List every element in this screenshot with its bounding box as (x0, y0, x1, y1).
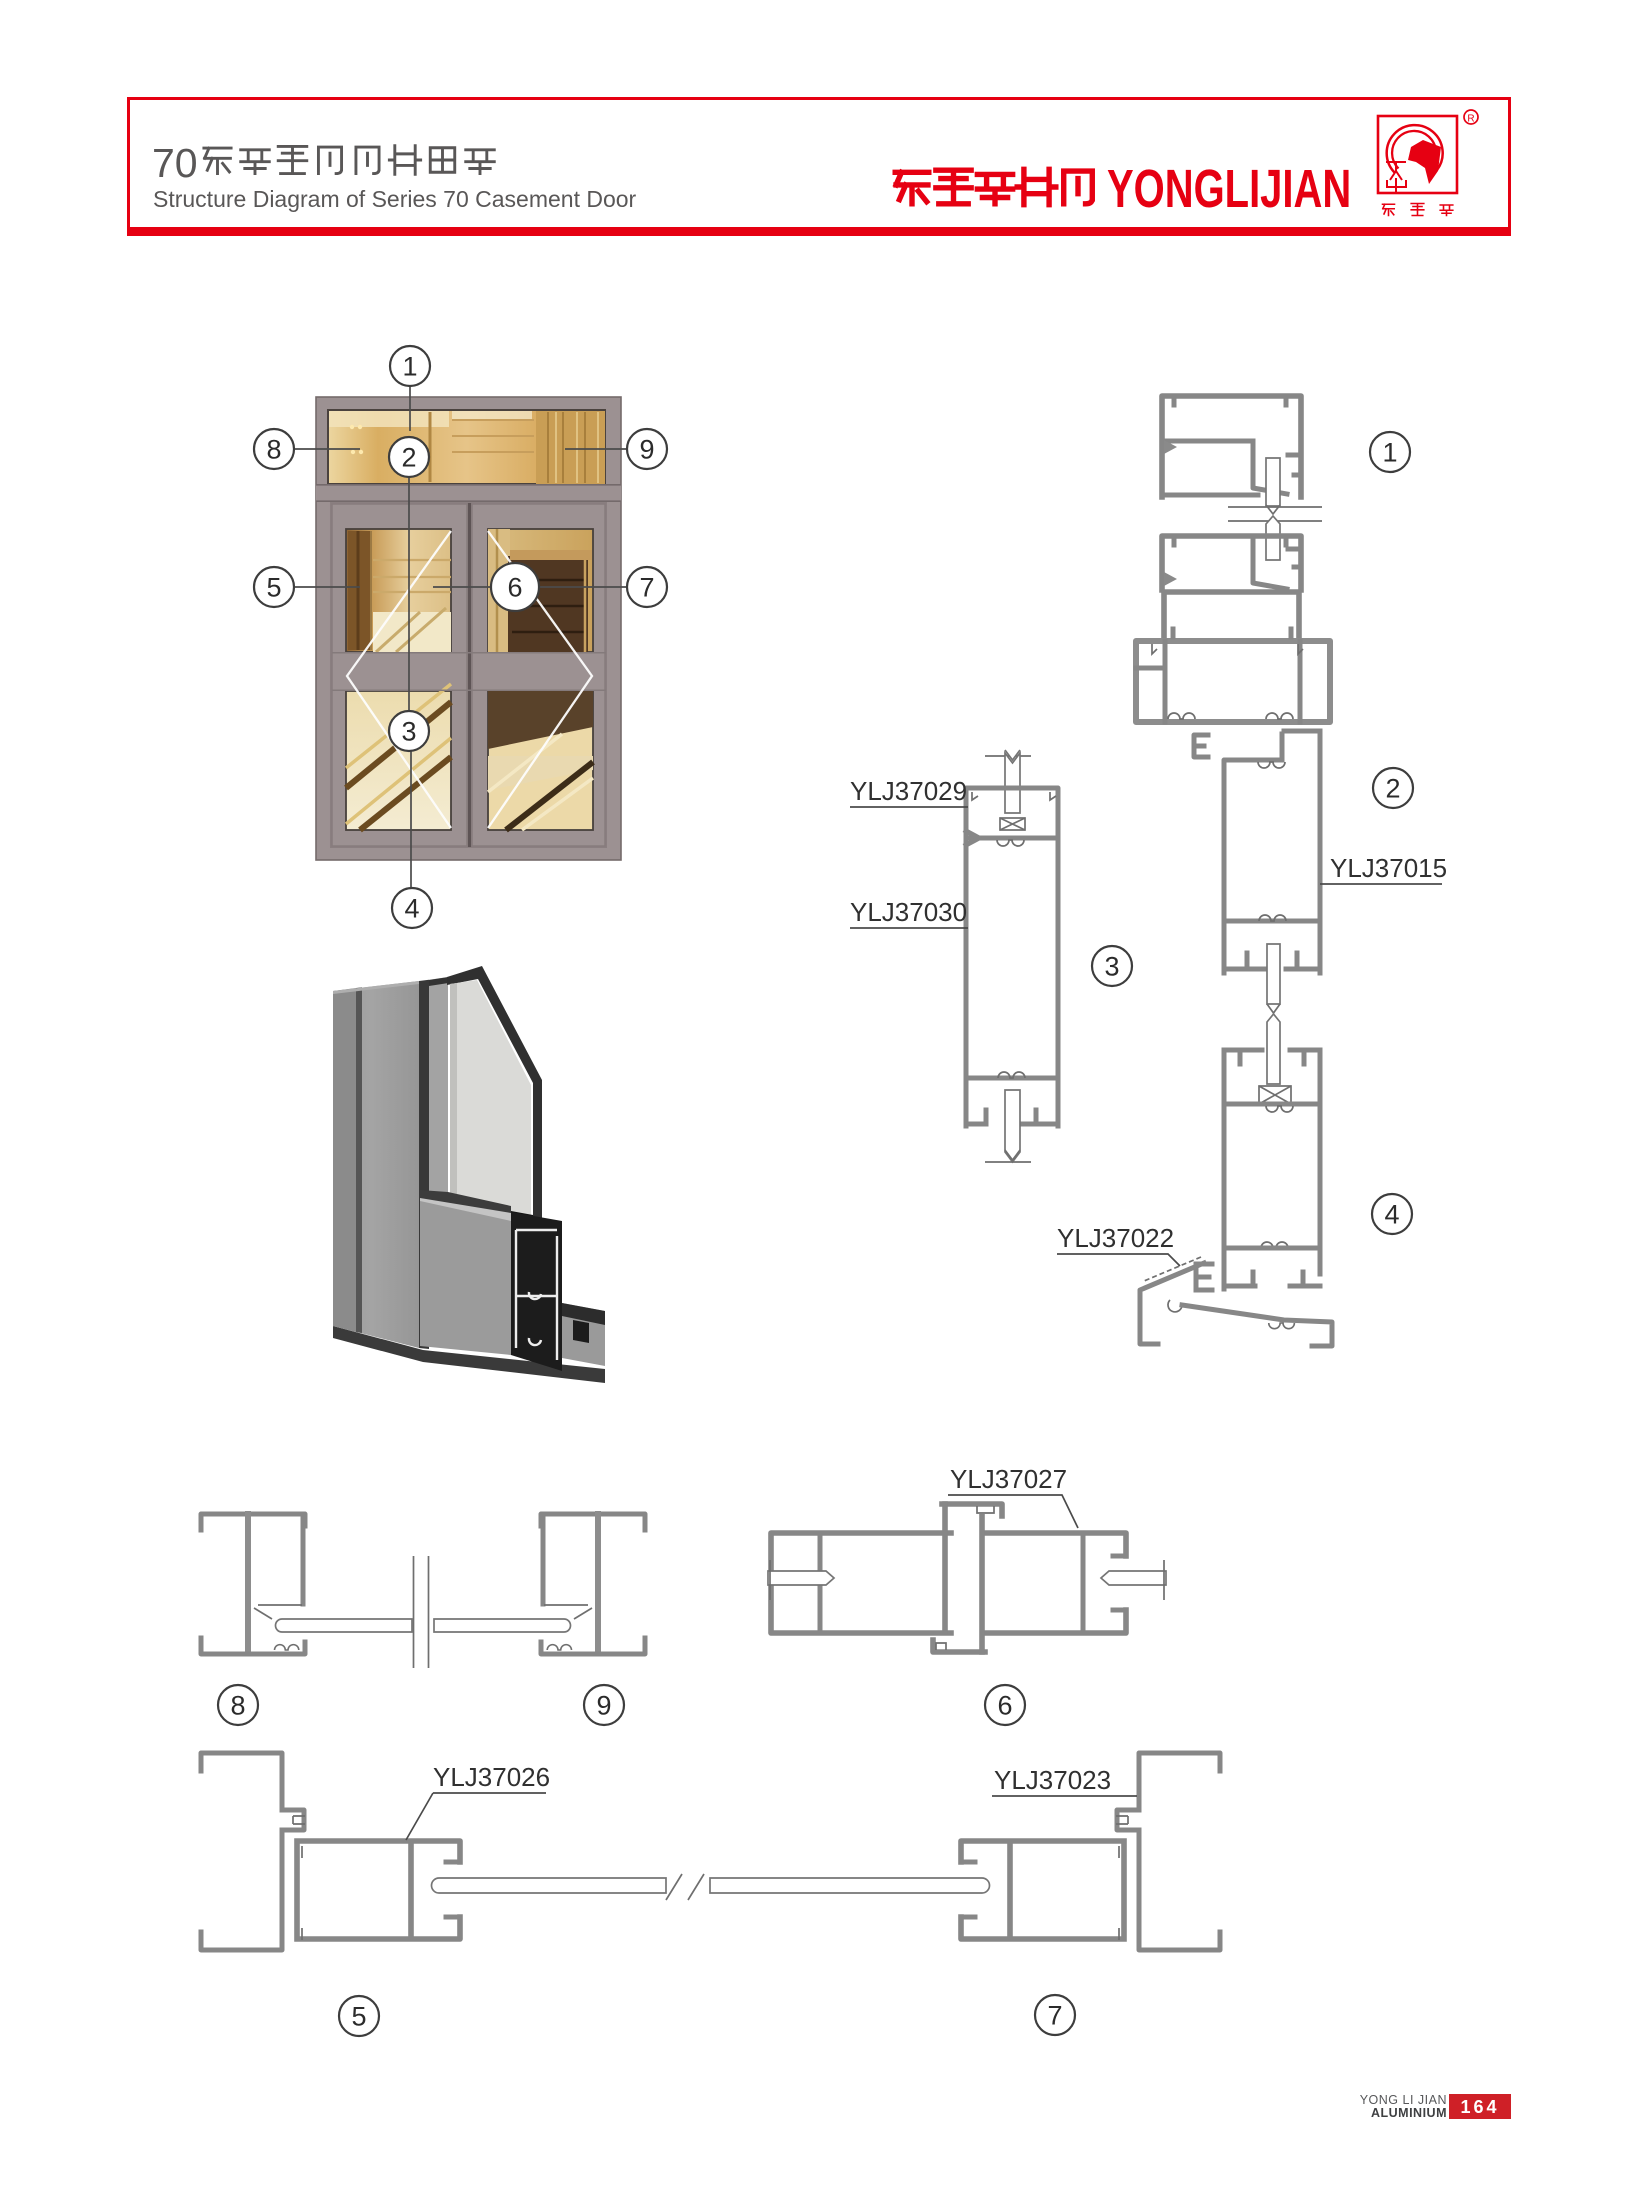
svg-text:YLJ37023: YLJ37023 (994, 1765, 1111, 1795)
svg-text:3: 3 (1104, 952, 1119, 982)
svg-text:9: 9 (639, 435, 654, 465)
svg-text:YLJ37030: YLJ37030 (850, 897, 967, 927)
svg-text:164: 164 (1460, 2097, 1499, 2117)
svg-text:R: R (1467, 114, 1474, 125)
svg-text:Structure Diagram of Series 70: Structure Diagram of Series 70 Casement … (153, 186, 637, 212)
svg-text:8: 8 (266, 435, 281, 465)
svg-text:5: 5 (351, 2002, 366, 2032)
svg-text:YLJ37022: YLJ37022 (1057, 1223, 1174, 1253)
svg-text:4: 4 (1384, 1200, 1399, 1230)
svg-text:ALUMINIUM: ALUMINIUM (1371, 2106, 1447, 2120)
svg-text:4: 4 (404, 894, 419, 924)
svg-text:1: 1 (402, 352, 417, 382)
svg-text:2: 2 (401, 443, 416, 473)
svg-text:YLJ37015: YLJ37015 (1330, 853, 1447, 883)
svg-text:YLJ37029: YLJ37029 (850, 776, 967, 806)
svg-text:YLJ37026: YLJ37026 (433, 1762, 550, 1792)
svg-text:9: 9 (596, 1691, 611, 1721)
svg-text:YLJ37027: YLJ37027 (950, 1464, 1067, 1494)
svg-text:6: 6 (507, 573, 522, 603)
svg-text:YONGLIJIAN: YONGLIJIAN (1107, 159, 1351, 219)
svg-text:7: 7 (1047, 2001, 1062, 2031)
svg-text:7: 7 (639, 573, 654, 603)
svg-text:5: 5 (266, 573, 281, 603)
svg-text:3: 3 (401, 717, 416, 747)
svg-text:YONG LI JIAN: YONG LI JIAN (1360, 2093, 1447, 2107)
svg-text:8: 8 (230, 1691, 245, 1721)
svg-text:6: 6 (997, 1691, 1012, 1721)
svg-text:70: 70 (152, 140, 198, 186)
svg-text:2: 2 (1385, 774, 1400, 804)
svg-text:1: 1 (1382, 438, 1397, 468)
